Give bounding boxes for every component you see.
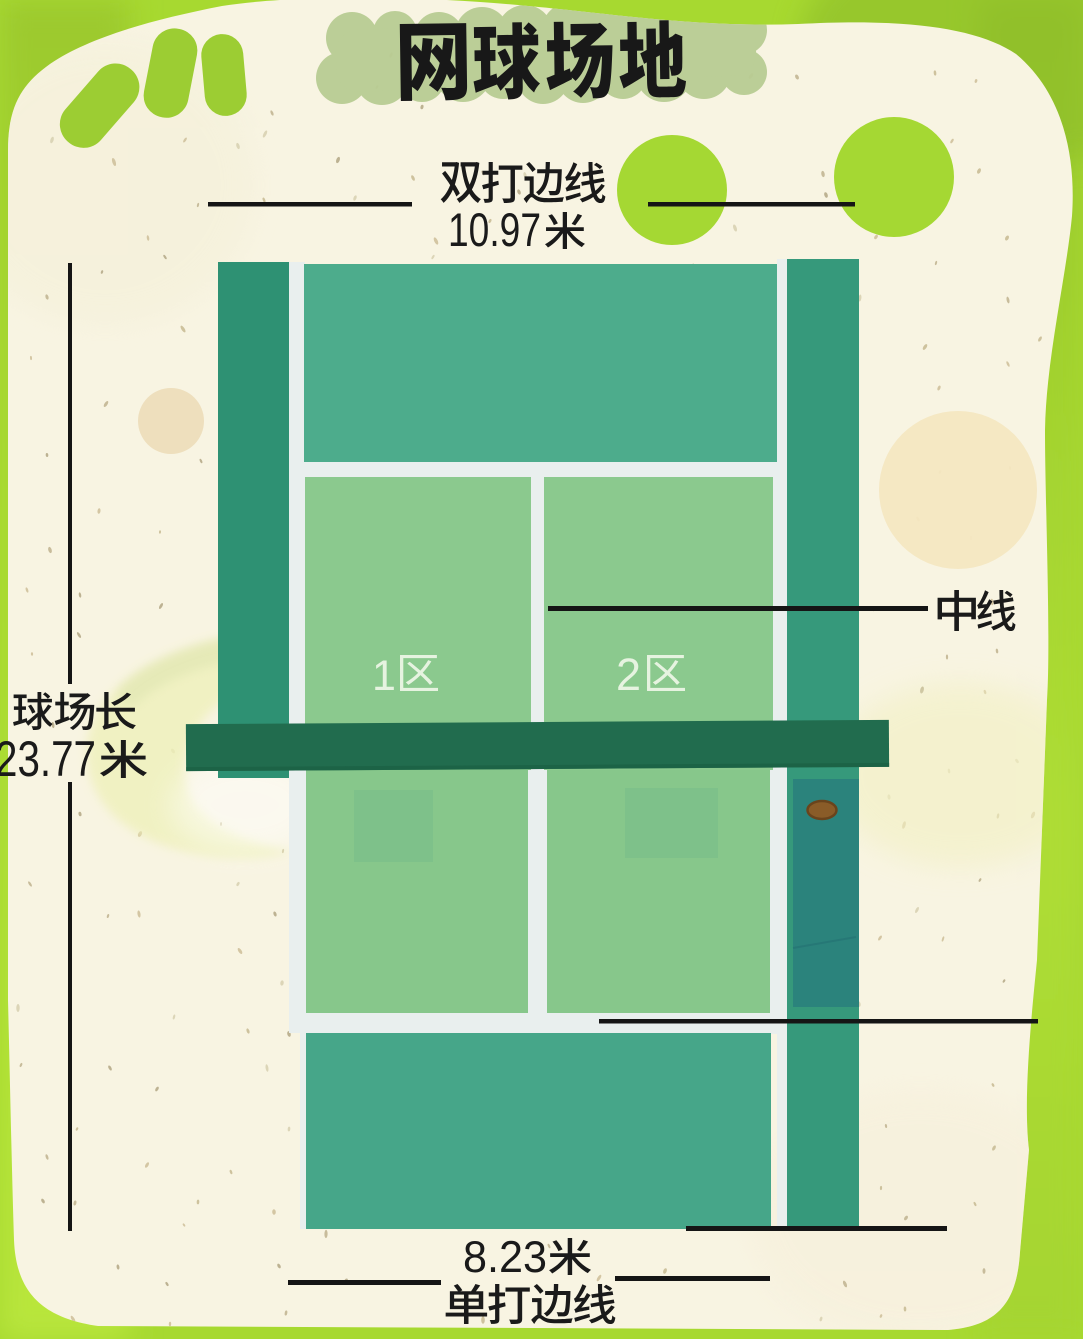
svg-text:8.23: 8.23	[463, 1233, 547, 1282]
svg-text:23.77: 23.77	[0, 731, 96, 787]
svg-text:1: 1	[372, 652, 396, 700]
svg-text:10.97: 10.97	[448, 203, 541, 256]
svg-text:2: 2	[616, 649, 641, 700]
